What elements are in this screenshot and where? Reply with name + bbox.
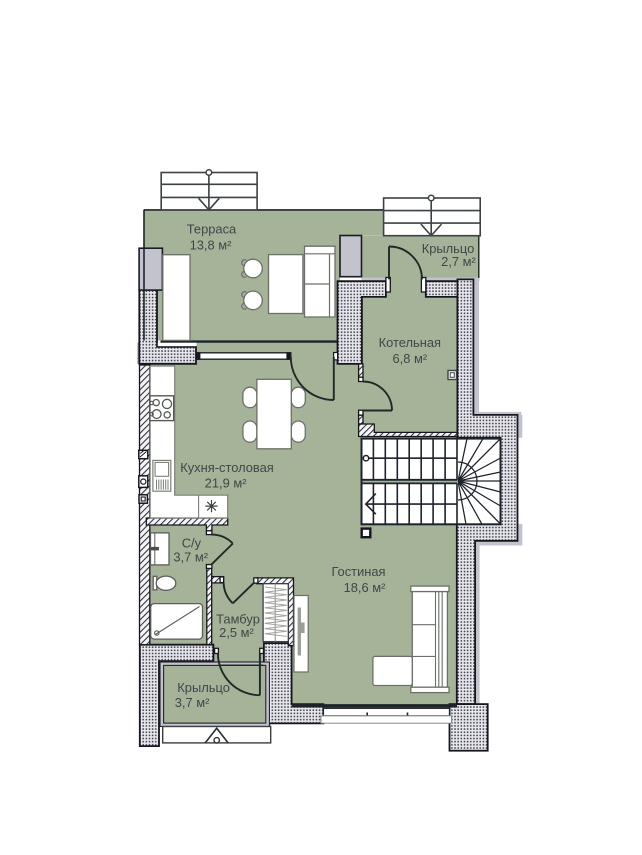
svg-text:Гостиная: Гостиная [331, 564, 385, 579]
svg-text:Кухня-столовая: Кухня-столовая [180, 460, 274, 475]
svg-text:2,7 м²: 2,7 м² [441, 254, 476, 269]
svg-text:Крыльцо: Крыльцо [177, 680, 230, 695]
svg-text:Терраса: Терраса [187, 222, 237, 237]
svg-text:3,7 м²: 3,7 м² [175, 695, 210, 710]
svg-text:2,5 м²: 2,5 м² [219, 625, 254, 640]
svg-text:Котельная: Котельная [379, 335, 441, 350]
svg-text:6,8 м²: 6,8 м² [392, 351, 427, 366]
svg-text:С/у: С/у [182, 536, 202, 551]
svg-text:21,9 м²: 21,9 м² [205, 476, 248, 491]
svg-text:18,6 м²: 18,6 м² [344, 580, 387, 595]
svg-text:13,8 м²: 13,8 м² [190, 238, 233, 253]
svg-text:3,7 м²: 3,7 м² [173, 550, 208, 565]
